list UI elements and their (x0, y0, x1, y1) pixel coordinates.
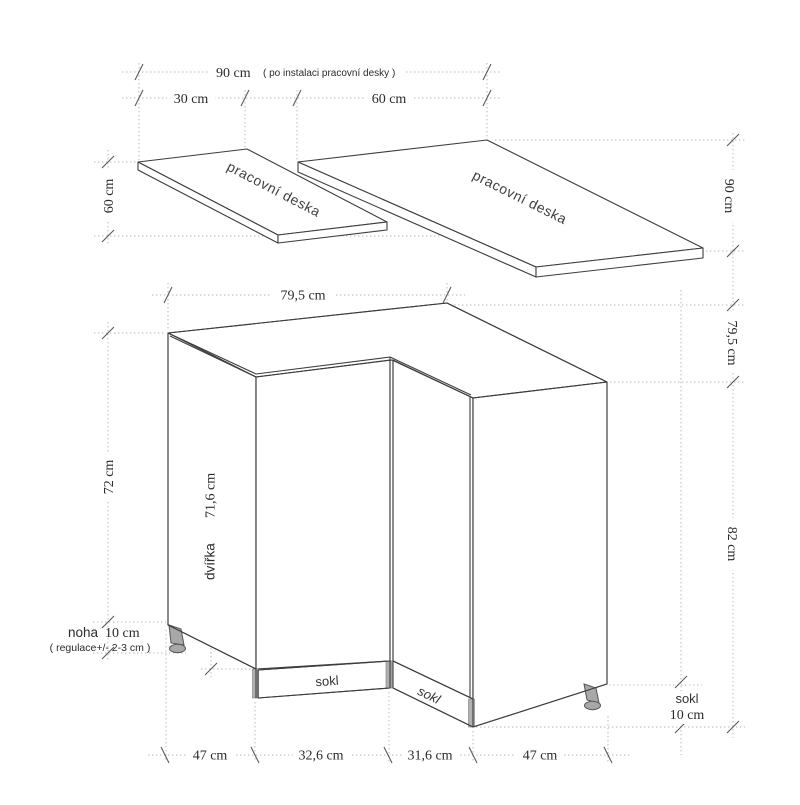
dim-small-width-value: 30 cm (174, 92, 209, 107)
dim-body-height-value: 72 cm (102, 460, 117, 495)
dim-small-depth-value: 60 cm (102, 179, 117, 214)
leg-label: noha (68, 625, 99, 640)
dim-small-depth-label: 60 cm (100, 170, 117, 222)
dim-cabinet-top-depth-label: 79,5 cm (724, 313, 741, 373)
cabinet-right-side-panel (473, 382, 607, 727)
corner-leg-icon (469, 699, 475, 727)
cabinet-left-door (256, 360, 390, 669)
plinth-dim-value: 10 cm (670, 708, 705, 723)
right-leg-foot-icon (585, 701, 601, 709)
corner-leg-icon (386, 661, 392, 688)
corner-cabinet-technical-drawing: pracovní deska pracovní deska sokl sokl (0, 0, 800, 800)
dim-large-depth-value: 90 cm (721, 179, 736, 214)
dim-bottom-left-side-value: 47 cm (193, 749, 228, 764)
dim-height-right-label: 82 cm (724, 518, 741, 570)
leg-regulation-note: ( regulace+/- 2-3 cm ) (50, 642, 151, 654)
leg-note-label: noha 10 cm ( regulace+/- 2-3 cm ) (50, 625, 151, 654)
cabinet-right-door (393, 360, 473, 699)
left-leg-foot-icon (170, 644, 186, 652)
dim-total-width-value: 90 cm (216, 66, 251, 81)
dim-large-width-value: 60 cm (372, 92, 407, 107)
dim-body-height-label: 72 cm (100, 452, 117, 502)
dim-height-right-value: 82 cm (724, 527, 739, 562)
dim-small-width-label: 30 cm (167, 90, 215, 107)
dim-cabinet-top-depth-value: 79,5 cm (724, 320, 739, 365)
worktop-large-top-face (298, 140, 703, 267)
dim-large-depth-label: 90 cm (721, 170, 738, 222)
leg-dim-value: 10 cm (105, 626, 140, 641)
plinth-front-label: sokl (315, 673, 339, 690)
dim-cabinet-top-width-label: 79,5 cm (272, 287, 334, 304)
plinth-front-label-group: sokl (315, 673, 339, 690)
dim-bottom-right-side-value: 47 cm (523, 749, 558, 764)
dim-ticks (675, 134, 739, 733)
door-dim-value: 71,6 cm (204, 473, 219, 518)
dim-total-width-note: ( po instalaci pracovní desky ) (263, 68, 395, 79)
technical-drawing-page: pracovní deska pracovní deska sokl sokl (0, 0, 800, 800)
dim-bottom-front-right-value: 31,6 cm (407, 749, 452, 764)
dim-total-width-label: 90 cm ( po instalaci pracovní desky ) (210, 64, 406, 81)
dim-bottom-front-left-value: 32,6 cm (298, 749, 343, 764)
cabinet-body (168, 303, 607, 727)
door-dimension-label: dvířka 71,6 cm (201, 466, 219, 582)
plinth-dim-word: sokl (675, 691, 698, 706)
dim-large-width-label: 60 cm (365, 90, 413, 107)
dim-cabinet-top-width-value: 79,5 cm (280, 289, 325, 304)
bottom-dimension-labels: 47 cm 32,6 cm 31,6 cm 47 cm (186, 747, 564, 764)
plinth-dimension-label: sokl 10 cm (663, 691, 710, 724)
door-label: dvířka (203, 543, 218, 580)
